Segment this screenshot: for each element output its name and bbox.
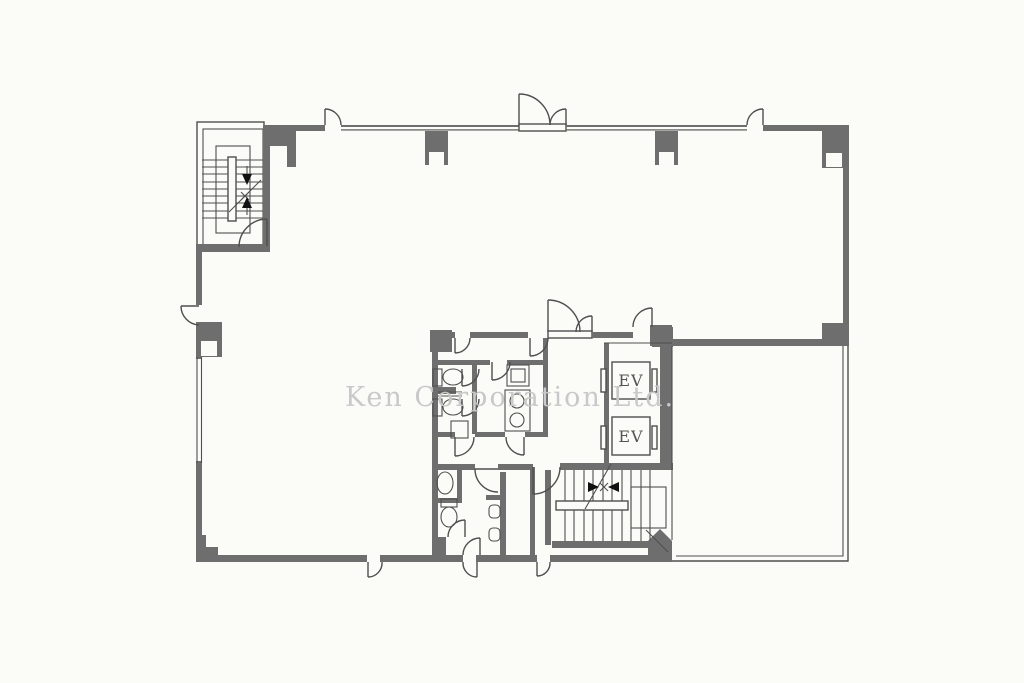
lower-stairwell (556, 464, 666, 541)
watermark-text: Ken Corporation Ltd. (345, 382, 675, 413)
upper-stairwell (196, 122, 270, 252)
balcony (672, 346, 848, 561)
outer-walls (196, 124, 849, 562)
structural-columns (196, 131, 846, 357)
floor-plan-svg: EV EV (0, 0, 1024, 683)
floor-plan-canvas: EV EV (0, 0, 1024, 683)
elevator-2-label: EV (618, 427, 643, 446)
